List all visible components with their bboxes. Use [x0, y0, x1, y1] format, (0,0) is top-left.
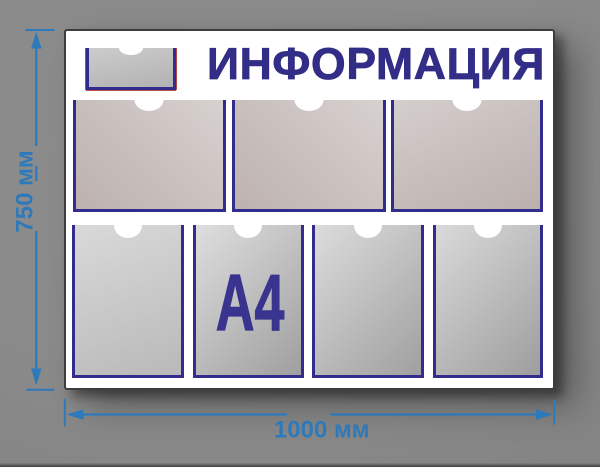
svg-text:750 мм: 750 мм — [12, 150, 39, 232]
svg-text:1000 мм: 1000 мм — [274, 416, 370, 443]
